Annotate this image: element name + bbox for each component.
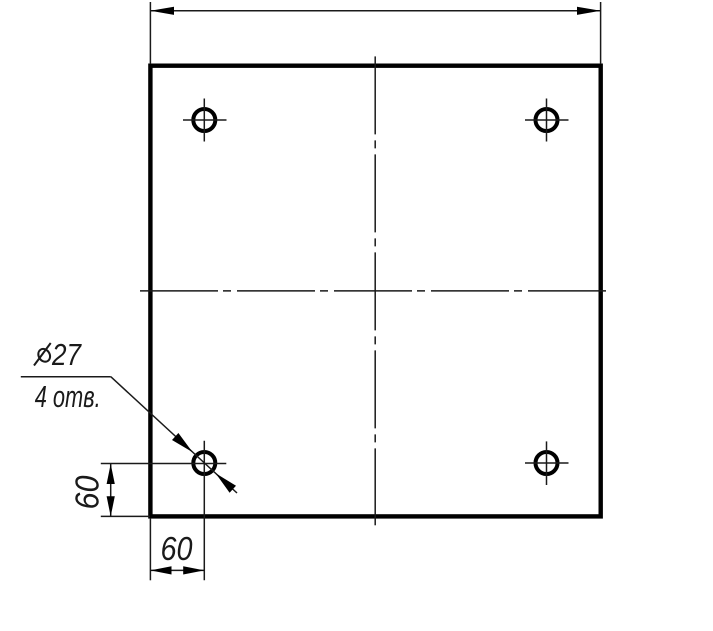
svg-text:60: 60	[161, 530, 194, 567]
svg-text:60: 60	[69, 475, 106, 510]
svg-text:4 отв.: 4 отв.	[35, 379, 101, 414]
svg-text:27: 27	[51, 337, 82, 372]
